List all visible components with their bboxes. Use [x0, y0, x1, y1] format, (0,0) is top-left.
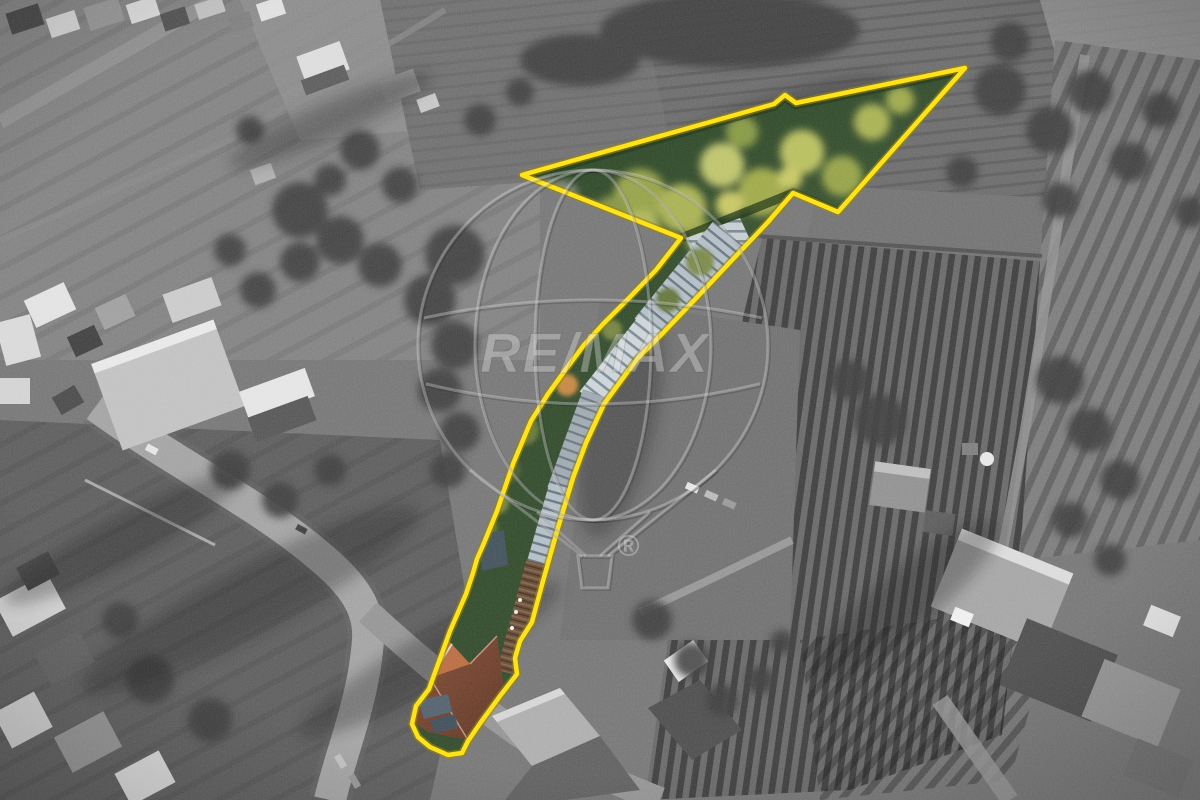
vignette: [0, 0, 1200, 800]
aerial-property-photo: RE/MAX ®: [0, 0, 1200, 800]
photo-canvas: RE/MAX ®: [0, 0, 1200, 800]
